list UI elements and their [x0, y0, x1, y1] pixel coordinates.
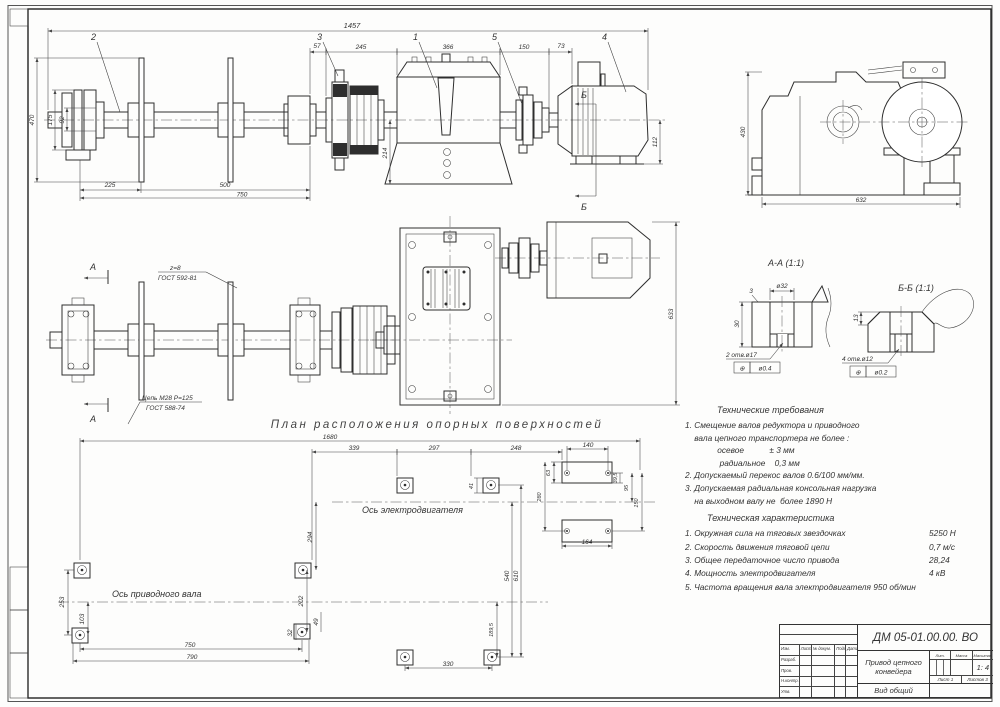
dim-112: 112: [652, 136, 659, 147]
title-block: Изм. Лист № докум. Подп. Дата Разраб. Пр…: [779, 624, 992, 698]
section-aa-title: А-А (1:1): [767, 258, 804, 268]
header-sign: Подп.: [835, 645, 846, 655]
view-label: Вид общий: [858, 684, 930, 697]
dim-632: 632: [856, 197, 867, 204]
dim-150-layout: 150: [634, 497, 640, 507]
dim-430: 430: [740, 126, 747, 137]
end-view: 430 632: [740, 62, 968, 208]
tolerance-value-bb: ø0.2: [874, 370, 887, 377]
dim-95: 95: [624, 484, 630, 491]
dim-470: 470: [29, 114, 36, 125]
front-view: Б Б 2 3 1 5 4 1457 57 245 366 150 73: [29, 21, 668, 212]
callout-5: 5: [492, 32, 498, 42]
header-izm: Изм.: [780, 645, 800, 655]
dim-73: 73: [557, 43, 565, 50]
tech-char-value: [929, 581, 991, 594]
plan-gearbox-cover: [423, 267, 470, 310]
dim-294: 294: [307, 531, 314, 543]
dim-248: 248: [510, 445, 522, 452]
dim-39-5: 39,5: [613, 472, 619, 484]
sheet-number: Лист 1: [930, 676, 962, 683]
tech-req-line: радиальное 0,3 мм: [685, 457, 991, 470]
row-nkontr: Н.контр.: [780, 677, 800, 687]
section-bb-title: Б-Б (1:1): [898, 283, 934, 293]
section-a-marks: А А: [84, 262, 108, 424]
section-aa-dimensions: ø32 3 30 2 отв.ø17 ⊕ ø0.4: [725, 283, 794, 373]
dim-150: 150: [519, 44, 530, 51]
title-block-main: ДМ 05-01.00.00. ВО Привод цепного конвей…: [858, 625, 993, 697]
layout-dimensions: 1680 339 297 248 140 253 103 294 202 49 …: [59, 434, 645, 671]
tech-char-text: 3. Общее передаточное число привода: [685, 554, 839, 567]
tech-char-row: 2. Скорость движения тяговой цепи 0,7 м/…: [685, 541, 991, 554]
dim-225: 225: [104, 182, 116, 189]
tech-char-row: 3. Общее передаточное число привода 28,2…: [685, 554, 991, 567]
dim-189: 189,5: [489, 622, 495, 637]
tech-char-title: Техническая характеристика: [685, 513, 991, 523]
section-a-label-top: А: [89, 262, 96, 272]
dim-30: 30: [734, 320, 741, 328]
tolerance-value-aa: ø0.4: [758, 366, 771, 373]
callout-2: 2: [90, 32, 96, 42]
holes-note-bb: 4 отв.ø12: [842, 356, 873, 363]
header-scale: Масштаб: [973, 651, 993, 659]
plan-motor: [547, 222, 650, 298]
tech-char-value: 28,24: [929, 554, 991, 567]
drawing-name: Привод цепного конвейера: [858, 651, 930, 683]
row-prov: Пров.: [780, 666, 800, 676]
plan-drive-view: 633: [370, 216, 680, 414]
drawing-canvas: Б Б 2 3 1 5 4 1457 57 245 366 150 73: [0, 0, 1000, 707]
document-number: ДМ 05-01.00.00. ВО: [858, 625, 993, 651]
tech-req-title: Технические требования: [685, 405, 991, 415]
shaft-axis-label: Ось приводного вала: [112, 589, 201, 599]
tech-char-value: 4 кВ: [929, 567, 991, 580]
header-list: Лист: [800, 645, 812, 655]
chain-note-gost: ГОСТ 588-74: [146, 405, 185, 412]
plan-shaft-view: А А z=8 ГОСТ 592-81 Цепь М28 P=125 ГОСТ …: [46, 262, 396, 424]
dim-92: 92: [59, 116, 66, 124]
dim-13: 13: [853, 314, 860, 322]
dim-500: 500: [220, 182, 231, 189]
dim-175: 175: [47, 114, 54, 125]
dim-1680: 1680: [323, 434, 338, 441]
tolerance-symbol-aa: ⊕: [739, 366, 745, 373]
callout-1: 1: [413, 32, 418, 42]
dim-330: 330: [443, 661, 454, 668]
tech-req-line: на выходном валу не более 1890 Н: [685, 495, 991, 508]
header-mass: Масса: [951, 651, 972, 659]
dim-366: 366: [443, 44, 454, 51]
tech-req-line: осевое ± 3 мм: [685, 444, 991, 457]
tech-req-line: 3. Допускаемая радиальная консольная наг…: [685, 482, 991, 495]
sprocket-note-z: z=8: [169, 265, 181, 272]
holes-note-aa: 2 отв.ø17: [725, 352, 757, 359]
dim-280: 280: [537, 491, 543, 502]
technical-notes: Технические требования 1. Смещение валов…: [685, 405, 991, 594]
dim-41: 41: [469, 483, 475, 489]
tech-char-row: 5. Частота вращения вала электродвигател…: [685, 581, 991, 594]
tolerance-symbol-bb: ⊕: [855, 370, 861, 377]
header-lit: Лит.: [930, 651, 951, 659]
scale-value: 1: 4: [973, 660, 993, 675]
lit-cells: [930, 660, 951, 675]
section-aa: А-А (1:1) ø32 3 30 2 отв.ø17 ⊕ ø0.4: [725, 258, 831, 373]
callout-3: 3: [317, 32, 322, 42]
tech-char-text: 5. Частота вращения вала электродвигател…: [685, 581, 916, 594]
dim-140: 140: [583, 442, 594, 449]
front-pulley-unit: [48, 90, 104, 160]
dim-63: 63: [546, 469, 552, 476]
plan-drive-dimensions: 633: [502, 222, 680, 405]
dim-214: 214: [382, 147, 389, 159]
mass-cell: [951, 660, 972, 675]
dim-633: 633: [668, 308, 675, 319]
header-date: Дата: [846, 645, 857, 655]
dim-103: 103: [79, 613, 86, 624]
dim-202: 202: [298, 595, 305, 607]
front-dimensions: 1457 57 245 366 150 73 470 175 92 22: [29, 21, 663, 201]
dim-57: 57: [313, 43, 321, 50]
dim-540: 540: [504, 570, 511, 581]
dim-3: 3: [749, 288, 753, 295]
tech-char-text: 4. Мощность электродвигателя: [685, 567, 815, 580]
front-gearbox: [385, 54, 516, 184]
dim-164: 164: [582, 539, 593, 546]
header-doc: № докум.: [812, 645, 836, 655]
org-cell: [930, 684, 993, 697]
dim-610: 610: [513, 570, 520, 581]
motor-axis-label: Ось электродвигателя: [362, 505, 463, 515]
section-b-label-top: Б: [581, 90, 587, 100]
tech-char-text: 1. Окружная сила на тяговых звездочках: [685, 527, 846, 540]
section-a-label-bottom: А: [89, 414, 96, 424]
tech-req-line: 2. Допускаемый перекос валов 0.6/100 мм/…: [685, 469, 991, 482]
tech-char-value: 5250 Н: [929, 527, 991, 540]
dim-750: 750: [237, 192, 248, 199]
dim-32: 32: [287, 629, 294, 637]
drawing-sheet: Б Б 2 3 1 5 4 1457 57 245 366 150 73: [0, 0, 1000, 707]
tech-req-line: 1. Смещение валов редуктора и приводного: [685, 419, 991, 432]
layout-plan: Ось электродвигателя Ось приводного вала…: [58, 434, 658, 671]
dim-253: 253: [59, 596, 66, 608]
dim-339: 339: [349, 445, 360, 452]
callout-4: 4: [602, 32, 607, 42]
dim-790: 790: [187, 654, 198, 661]
tech-char-text: 2. Скорость движения тяговой цепи: [685, 541, 830, 554]
section-b-label-bottom: Б: [581, 202, 587, 212]
dim-dia32: ø32: [776, 283, 788, 290]
dim-245: 245: [355, 44, 367, 51]
sprocket-note: z=8 ГОСТ 592-81: [158, 265, 237, 288]
tech-char-value: 0,7 м/с: [929, 541, 991, 554]
sprocket-note-gost: ГОСТ 592-81: [158, 275, 197, 282]
chain-note-text: Цепь М28 P=125: [142, 395, 193, 402]
title-block-signatures: Изм. Лист № докум. Подп. Дата Разраб. Пр…: [780, 625, 858, 697]
dim-750-layout: 750: [185, 642, 196, 649]
dim-297: 297: [428, 445, 440, 452]
plan-caption: План расположения опорных поверхностей: [271, 419, 603, 431]
row-razrab: Разраб.: [780, 656, 800, 666]
row-utv: Утв.: [780, 687, 800, 697]
sheets-total: Листов 3: [962, 676, 993, 683]
dim-49: 49: [313, 618, 320, 626]
front-motor: [558, 62, 648, 164]
section-bb: Б-Б (1:1) 13 4 отв.ø12 ⊕ ø0.2: [842, 283, 974, 377]
tech-req-line: вала цепного транспортера не более :: [685, 432, 991, 445]
tech-char-row: 4. Мощность электродвигателя 4 кВ: [685, 567, 991, 580]
dim-1457: 1457: [344, 21, 362, 30]
tech-char-row: 1. Окружная сила на тяговых звездочках 5…: [685, 527, 991, 540]
